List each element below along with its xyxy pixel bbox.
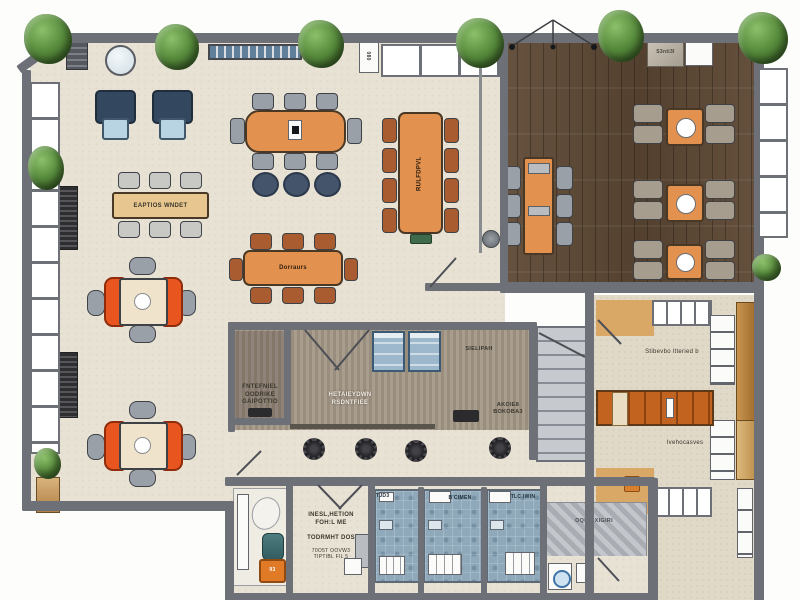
chair bbox=[347, 118, 362, 144]
chair bbox=[382, 178, 397, 203]
wall-vent-grille bbox=[208, 44, 302, 60]
stall-wall-sink bbox=[379, 520, 393, 530]
chair bbox=[230, 118, 245, 144]
storage-bottom-units bbox=[654, 487, 712, 517]
storage-wood-counter-lower bbox=[736, 420, 755, 480]
recliner-1-footrest bbox=[102, 118, 129, 140]
wall-stall-divider bbox=[418, 487, 424, 597]
corridor-label: OQIRDXIGIRI bbox=[548, 518, 640, 525]
stall-wall-sink bbox=[428, 520, 442, 530]
recliner-2-footrest bbox=[159, 118, 186, 140]
cart-label: 080 bbox=[365, 49, 371, 63]
chair bbox=[344, 258, 358, 281]
dining-table-1-plate bbox=[134, 293, 151, 310]
chair bbox=[180, 221, 202, 238]
tree bbox=[738, 12, 788, 64]
chair bbox=[129, 401, 156, 419]
terrace-plaque-label: S3nti3l bbox=[648, 49, 683, 55]
armchair bbox=[633, 201, 663, 220]
chair bbox=[382, 118, 397, 143]
wall-deck-left bbox=[228, 322, 235, 432]
chair bbox=[282, 233, 304, 250]
bush bbox=[28, 146, 64, 190]
shaggy-pouf bbox=[405, 440, 427, 462]
bar-front-edge bbox=[290, 424, 435, 429]
window-table-label: EAPTIOS WNDET bbox=[114, 203, 207, 211]
chair bbox=[118, 172, 140, 189]
chair bbox=[250, 287, 272, 304]
tree bbox=[24, 14, 72, 64]
chair bbox=[316, 153, 338, 170]
wall-deck-stairs bbox=[529, 322, 537, 460]
chair bbox=[229, 258, 243, 281]
armchair bbox=[633, 240, 663, 259]
chair bbox=[87, 290, 105, 316]
service-cart: 080 bbox=[359, 42, 379, 73]
tree bbox=[598, 10, 644, 62]
stall-fixture bbox=[505, 552, 535, 575]
bath-counter bbox=[237, 494, 249, 570]
chair bbox=[314, 233, 336, 250]
appliance-stack bbox=[737, 488, 753, 558]
floor-plan: 080 EAPTIOS WNDET Dorraurs bbox=[0, 0, 800, 600]
pantry-counter-item bbox=[248, 408, 272, 417]
locker-bottle bbox=[666, 398, 674, 418]
vertical-table-label: RULFDPVL bbox=[416, 134, 424, 214]
chair bbox=[118, 221, 140, 238]
chair bbox=[314, 287, 336, 304]
stall-2-label: B'CIMEN bbox=[440, 495, 480, 501]
storage-bottom-label: Ivehocasves bbox=[630, 440, 740, 448]
chair bbox=[556, 194, 573, 218]
wall-bath-divider bbox=[286, 480, 293, 600]
wall-terrace-bottom bbox=[500, 282, 762, 293]
armchair bbox=[705, 104, 735, 123]
stall-1-label: TJD3 bbox=[376, 493, 416, 499]
round-stool bbox=[314, 172, 341, 197]
terrace-plaque: S3nti3l bbox=[647, 40, 684, 67]
pantry-label-line2: OODRIKE bbox=[234, 392, 286, 400]
round-stool bbox=[252, 172, 279, 197]
chair bbox=[250, 233, 272, 250]
wall-stall-divider bbox=[481, 487, 487, 597]
tree bbox=[456, 18, 504, 68]
shelf-unit bbox=[58, 352, 78, 418]
chair bbox=[382, 148, 397, 173]
wall-left bbox=[22, 70, 31, 510]
chair bbox=[382, 208, 397, 233]
shaggy-pouf bbox=[489, 437, 511, 459]
wall-pantry-bottom bbox=[228, 418, 291, 425]
chair bbox=[284, 153, 306, 170]
dining-table-2-plate bbox=[134, 437, 151, 454]
wc-room-line1: INESL,HETION bbox=[292, 512, 370, 520]
glass-rail bbox=[479, 67, 482, 253]
armchair bbox=[633, 180, 663, 199]
storage-orange-floor-top bbox=[596, 300, 654, 336]
right-window-strip bbox=[758, 68, 788, 238]
display-fridge bbox=[408, 331, 441, 372]
bush bbox=[752, 254, 781, 281]
wall-top bbox=[42, 33, 762, 43]
armchair bbox=[705, 201, 735, 220]
wall-bottom-left bbox=[22, 501, 234, 511]
chair bbox=[282, 287, 304, 304]
chair bbox=[316, 93, 338, 110]
corridor-floor bbox=[545, 502, 647, 558]
armchair bbox=[705, 240, 735, 259]
chair bbox=[180, 172, 202, 189]
display-fridge bbox=[372, 331, 405, 372]
kitchen-small-label: SIELIPAH bbox=[448, 346, 510, 353]
wall-main-south-door bbox=[425, 283, 505, 291]
chair bbox=[444, 148, 459, 173]
kitchen-back-line1: AKOIE8 bbox=[480, 402, 536, 409]
device-screen bbox=[292, 126, 299, 134]
wall-storage-left bbox=[585, 290, 594, 600]
orange-box-label: 93 bbox=[261, 567, 284, 573]
chair bbox=[129, 325, 156, 343]
chair bbox=[284, 93, 306, 110]
orange-storage-box: 93 bbox=[259, 559, 286, 583]
bar-counter-slab bbox=[453, 410, 479, 422]
armchair bbox=[705, 125, 735, 144]
storage-top-label: Stibevbo ltteried b bbox=[612, 349, 732, 357]
round-side-table bbox=[105, 45, 136, 76]
armchair bbox=[705, 180, 735, 199]
armchair bbox=[705, 261, 735, 280]
wall-corridor-left bbox=[540, 480, 547, 600]
bar-table-tray bbox=[528, 163, 550, 174]
chair bbox=[149, 172, 171, 189]
toilet bbox=[262, 533, 284, 562]
armchair bbox=[633, 125, 663, 144]
wc-small-unit bbox=[344, 558, 362, 575]
stall-3-label: TLC IWIN bbox=[505, 494, 541, 500]
terrace-table-1-plate bbox=[676, 118, 696, 138]
shaggy-pouf bbox=[355, 438, 377, 460]
pantry-label-line1: FNTEFNIEL bbox=[234, 384, 286, 392]
stall-fixture bbox=[379, 556, 405, 575]
window-table: EAPTIOS WNDET bbox=[112, 192, 209, 219]
dorraurs-table: Dorraurs bbox=[243, 250, 343, 286]
bar-label-line2: RSDNTFIEE bbox=[290, 400, 410, 408]
stall-wall-sink bbox=[490, 520, 504, 530]
pantry-label: FNTEFNIEL OODRIKE GAIPOTTIO bbox=[234, 384, 286, 407]
appliance-stack bbox=[710, 420, 735, 480]
table-end-tray bbox=[410, 234, 432, 244]
chair bbox=[444, 208, 459, 233]
chair bbox=[444, 118, 459, 143]
tree bbox=[155, 24, 199, 70]
tree bbox=[298, 20, 344, 68]
bar-label-line1: HETAIEYDWN bbox=[290, 392, 410, 400]
wall-wc-left bbox=[225, 501, 234, 600]
bar-table-tray bbox=[528, 206, 550, 216]
wall-deck-top bbox=[228, 322, 536, 330]
washing-machine bbox=[548, 563, 572, 590]
chair bbox=[87, 434, 105, 460]
storage-wood-counter bbox=[736, 302, 755, 422]
wall-stall-divider bbox=[368, 480, 375, 600]
kitchen-back-label: AKOIE8 BOKOBA3 bbox=[480, 402, 536, 416]
conference-display-device bbox=[288, 120, 302, 140]
chair bbox=[556, 166, 573, 190]
chair bbox=[252, 93, 274, 110]
chair bbox=[556, 222, 573, 246]
chair bbox=[444, 178, 459, 203]
shelf-unit bbox=[58, 186, 78, 250]
washer-drum bbox=[553, 570, 571, 588]
terrace-table-3-plate bbox=[676, 253, 695, 272]
left-window-strip bbox=[30, 82, 60, 454]
wc-room-line2: FOH:L ME bbox=[292, 520, 370, 528]
armchair bbox=[633, 261, 663, 280]
long-vertical-table: RULFDPVL bbox=[398, 112, 443, 234]
chair bbox=[129, 257, 156, 275]
wall-pantry-right bbox=[284, 326, 291, 422]
chair bbox=[129, 469, 156, 487]
round-stool bbox=[283, 172, 310, 197]
locker-open-cell bbox=[612, 392, 628, 426]
chair bbox=[252, 153, 274, 170]
armchair bbox=[633, 104, 663, 123]
pantry-label-line3: GAIPOTTIO bbox=[234, 399, 286, 407]
trash-bin bbox=[482, 230, 500, 248]
wall-corridor-right bbox=[648, 478, 658, 600]
bar-label: HETAIEYDWN RSDNTFIEE bbox=[290, 392, 410, 407]
bush bbox=[34, 448, 61, 479]
storage-top-units bbox=[652, 300, 712, 326]
terrace-table-2-plate bbox=[676, 194, 696, 214]
staircase bbox=[536, 326, 592, 462]
dorraurs-table-label: Dorraurs bbox=[245, 265, 341, 273]
shaggy-pouf bbox=[303, 438, 325, 460]
wall-terrace-divider bbox=[500, 38, 508, 288]
kitchen-back-line2: BOKOBA3 bbox=[480, 409, 536, 416]
chair bbox=[149, 221, 171, 238]
stall-fixture bbox=[428, 554, 462, 575]
